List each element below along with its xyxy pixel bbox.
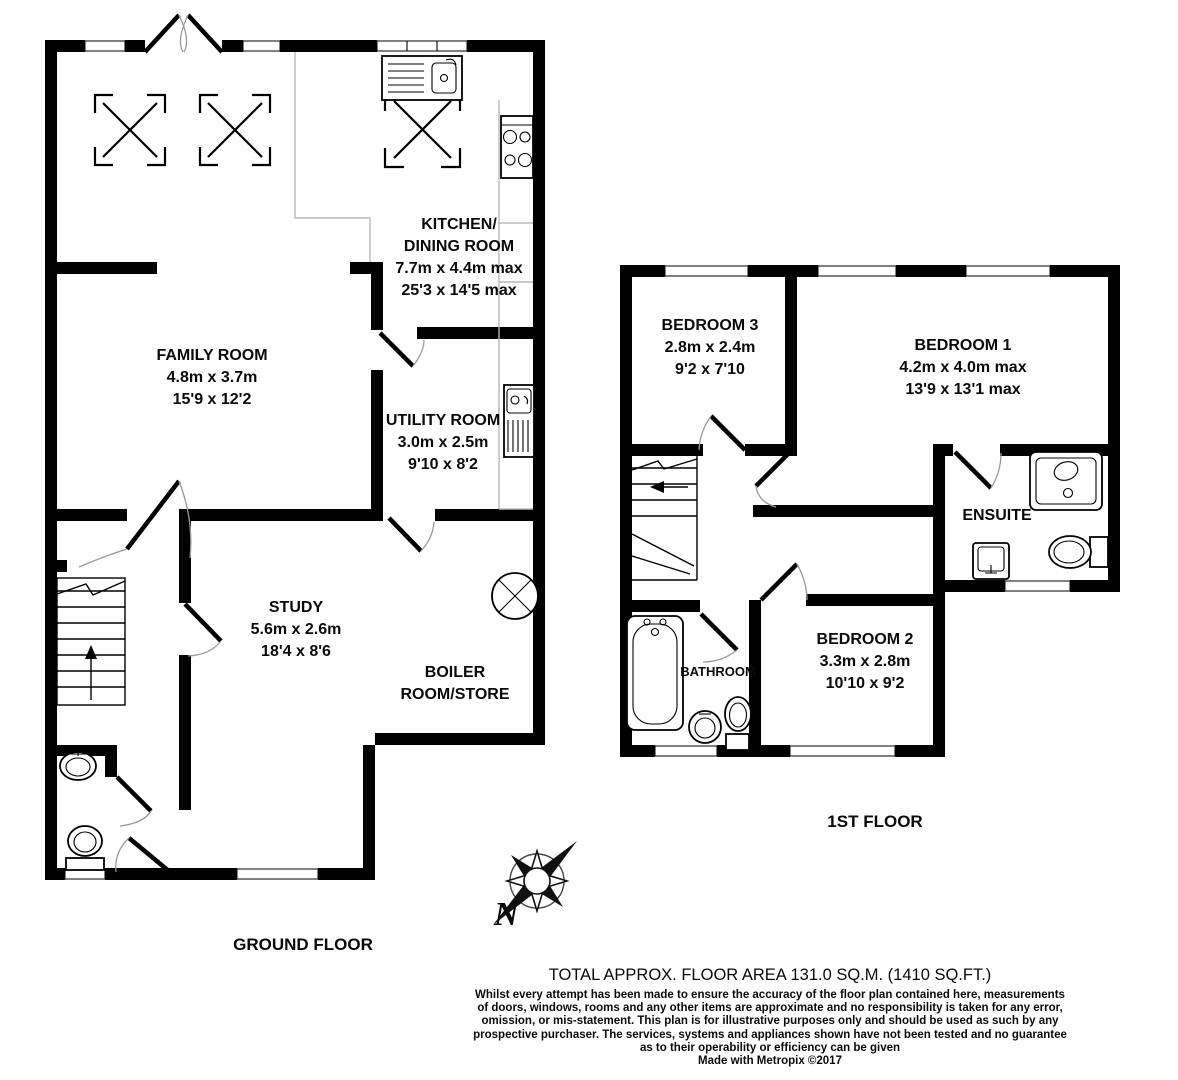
room-size-metric: 2.8m x 2.4m	[662, 337, 759, 359]
ensuite-toilet-icon	[1049, 536, 1108, 568]
room-size-imperial: 9'10 x 8'2	[386, 454, 500, 476]
disclaimer-line: of doors, windows, rooms and any other i…	[473, 1002, 1067, 1015]
room-size-metric: 7.7m x 4.4m max	[395, 258, 522, 280]
floorplan-drawing	[0, 0, 1178, 1080]
staircase-icon	[632, 456, 697, 580]
kitchen-sink-icon	[382, 56, 462, 100]
door	[701, 614, 737, 662]
door	[79, 481, 191, 567]
metropix-credit: Made with Metropix ©2017	[473, 1055, 1067, 1068]
ensuite-sink-icon	[973, 543, 1009, 579]
room-size-imperial: 10'10 x 9'2	[817, 673, 914, 695]
room-size-imperial: 15'9 x 12'2	[156, 389, 267, 411]
utility-sink-icon	[504, 385, 534, 457]
disclaimer-line: Whilst every attempt has been made to en…	[473, 989, 1067, 1002]
room-size-imperial: 25'3 x 14'5 max	[395, 280, 522, 302]
room-size-imperial: 18'4 x 8'6	[251, 641, 342, 663]
room-size-metric: 4.2m x 4.0m max	[899, 357, 1026, 379]
wc-toilet-icon	[66, 826, 104, 870]
room-label-study: STUDY 5.6m x 2.6m 18'4 x 8'6	[251, 597, 342, 663]
room-size-metric: 3.0m x 2.5m	[386, 432, 500, 454]
room-size-metric: 3.3m x 2.8m	[817, 651, 914, 673]
roof-lantern-icon	[95, 92, 460, 167]
french-door	[145, 15, 222, 52]
bathroom-sink-icon	[689, 711, 721, 743]
floorplan-page: KITCHEN/ DINING ROOM 7.7m x 4.4m max 25'…	[0, 0, 1178, 1080]
door	[116, 838, 170, 872]
disclaimer-text: Whilst every attempt has been made to en…	[473, 989, 1067, 1068]
room-name: KITCHEN/	[395, 214, 522, 236]
disclaimer-line: as to their operability or efficiency ca…	[473, 1042, 1067, 1055]
door	[761, 564, 807, 600]
room-size-imperial: 13'9 x 13'1 max	[899, 379, 1026, 401]
door	[756, 452, 790, 507]
first-floor-title: 1ST FLOOR	[827, 811, 922, 833]
ground-floor-title: GROUND FLOOR	[233, 934, 373, 956]
disclaimer-line: prospective purchaser. The services, sys…	[473, 1029, 1067, 1042]
room-name: ROOM/STORE	[400, 684, 509, 706]
room-name: BEDROOM 1	[899, 335, 1026, 357]
stove-icon	[501, 116, 533, 178]
room-size-metric: 4.8m x 3.7m	[156, 367, 267, 389]
room-label-bedroom2: BEDROOM 2 3.3m x 2.8m 10'10 x 9'2	[817, 629, 914, 695]
room-name: UTILITY ROOM	[386, 410, 500, 432]
wall	[45, 262, 545, 810]
total-area-text: TOTAL APPROX. FLOOR AREA 131.0 SQ.M. (14…	[549, 966, 992, 985]
door	[699, 416, 745, 450]
room-name: BEDROOM 3	[662, 315, 759, 337]
ensuite-basin-icon	[1030, 447, 1102, 510]
room-size-imperial: 9'2 x 7'10	[662, 359, 759, 381]
door	[117, 777, 151, 826]
compass-north-label: N	[494, 896, 519, 934]
disclaimer-line: omission, or mis-statement. This plan is…	[473, 1015, 1067, 1028]
room-label-boiler: BOILER ROOM/STORE	[400, 662, 509, 706]
door	[389, 518, 434, 551]
staircase-icon	[57, 578, 125, 705]
room-label-bedroom1: BEDROOM 1 4.2m x 4.0m max 13'9 x 13'1 ma…	[899, 335, 1026, 401]
bathroom-toilet-icon	[725, 697, 751, 750]
room-label-family: FAMILY ROOM 4.8m x 3.7m 15'9 x 12'2	[156, 345, 267, 411]
boiler-icon	[492, 573, 538, 619]
room-name: BEDROOM 2	[817, 629, 914, 651]
room-name: FAMILY ROOM	[156, 345, 267, 367]
door	[955, 452, 1001, 488]
room-name: DINING ROOM	[395, 236, 522, 258]
room-name: BOILER	[400, 662, 509, 684]
bathtub-icon	[627, 616, 683, 730]
room-label-utility: UTILITY ROOM 3.0m x 2.5m 9'10 x 8'2	[386, 410, 500, 476]
door	[185, 604, 221, 656]
room-size-metric: 5.6m x 2.6m	[251, 619, 342, 641]
room-name: STUDY	[251, 597, 342, 619]
room-label-bathroom: BATHROOM	[680, 664, 756, 680]
room-label-kitchen: KITCHEN/ DINING ROOM 7.7m x 4.4m max 25'…	[395, 214, 522, 302]
room-label-ensuite: ENSUITE	[962, 505, 1031, 527]
room-label-bedroom3: BEDROOM 3 2.8m x 2.4m 9'2 x 7'10	[662, 315, 759, 381]
